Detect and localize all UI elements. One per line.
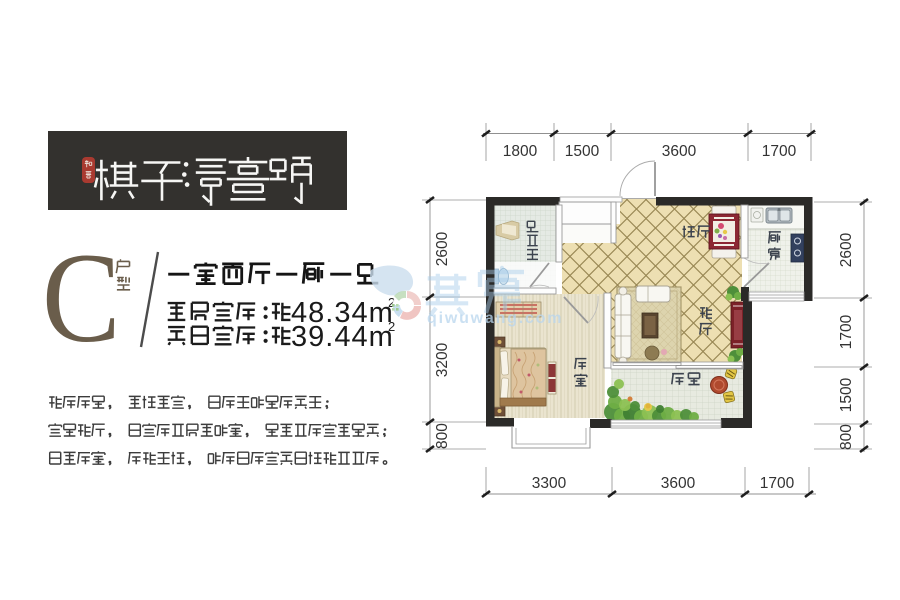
svg-text:2: 2	[388, 319, 395, 334]
svg-text:1700: 1700	[760, 475, 795, 492]
svg-text:3600: 3600	[661, 475, 696, 492]
svg-text:3300: 3300	[532, 475, 567, 492]
svg-text:1700: 1700	[762, 143, 797, 160]
svg-text:800: 800	[838, 424, 855, 450]
svg-text:1700: 1700	[838, 314, 855, 349]
svg-text:2600: 2600	[434, 231, 451, 266]
svg-text:800: 800	[434, 423, 451, 449]
svg-text:qiwuwang.com: qiwuwang.com	[427, 310, 563, 327]
svg-text:39.44m: 39.44m	[291, 321, 394, 353]
svg-text:3600: 3600	[662, 143, 697, 160]
svg-text:2600: 2600	[838, 232, 855, 267]
svg-text:C: C	[42, 227, 121, 370]
svg-text:1500: 1500	[565, 143, 600, 160]
svg-text:1800: 1800	[503, 143, 538, 160]
svg-text:1500: 1500	[838, 377, 855, 412]
svg-text:3200: 3200	[434, 342, 451, 377]
